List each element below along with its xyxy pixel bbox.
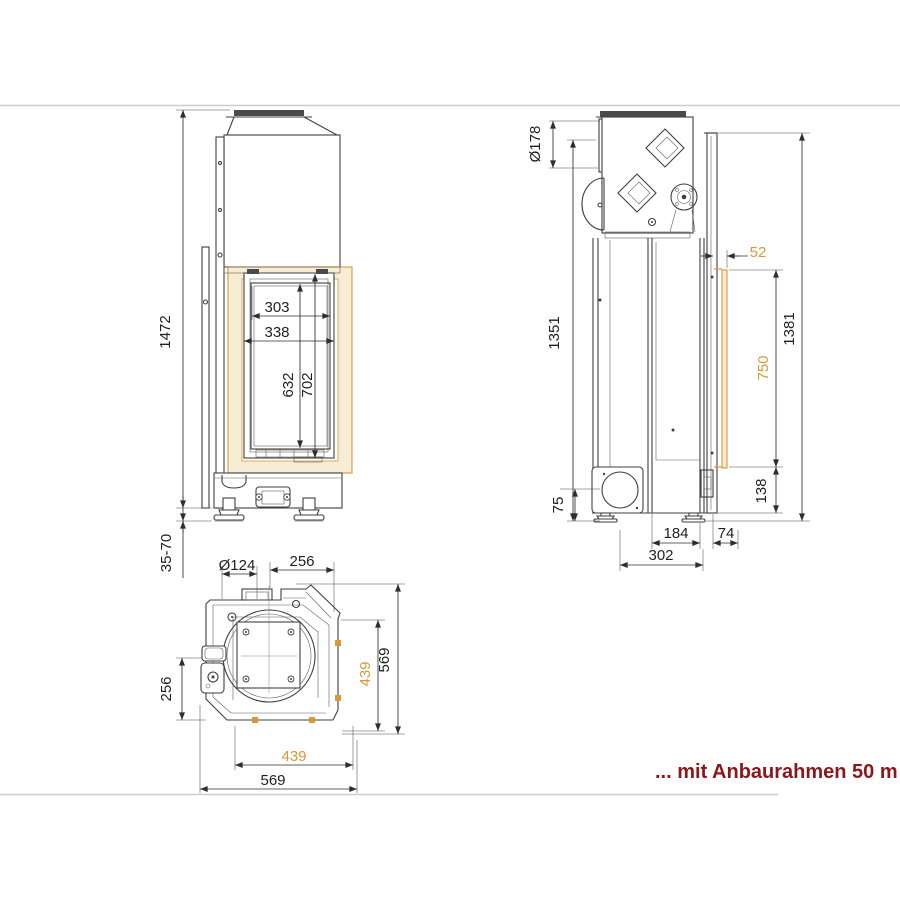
technical-drawing-page: 1472 35-70 303 338 632 702	[0, 0, 900, 900]
side-front-panel	[707, 133, 717, 513]
side-top-plate	[600, 111, 686, 117]
dim-side-flue-diameter: Ø178	[527, 126, 544, 163]
annotation-note: ... mit Anbaurahmen 50 m	[655, 761, 900, 789]
dim-front-door-width: 338	[264, 324, 289, 341]
dim-front-glass-width: 303	[264, 299, 289, 316]
dim-top-overall-depth: 569	[376, 647, 393, 672]
dim-side-base-depth: 302	[648, 547, 673, 564]
front-view: 1472 35-70 303 338 632 702	[157, 110, 352, 578]
dim-top-frame-width-front: 439	[281, 748, 306, 765]
side-feet	[594, 513, 705, 522]
side-upper-box	[602, 117, 693, 233]
dim-top-overall-width: 569	[260, 772, 285, 789]
dim-side-frame-bottom-offset: 138	[753, 478, 770, 503]
dim-front-total-height: 1472	[157, 315, 174, 348]
dim-side-front-clearance: 74	[718, 525, 735, 542]
dim-top-center-to-side: 256	[289, 553, 314, 570]
front-upper-box	[224, 135, 340, 267]
dim-side-base-height: 75	[550, 497, 567, 514]
front-top-plate	[234, 110, 304, 116]
dim-top-frame-width-right: 439	[357, 661, 374, 686]
dim-front-foot-adjust: 35-70	[158, 534, 175, 572]
dim-side-foot-spacing: 184	[663, 525, 688, 542]
bottom-fan-box	[592, 467, 643, 513]
dim-side-rear-height: 1351	[546, 316, 563, 349]
dim-side-front-height: 1381	[781, 312, 798, 345]
dim-top-side-offset: 256	[158, 676, 175, 701]
dim-top-inlet-diameter: Ø124	[219, 557, 256, 574]
dim-front-glass-height: 632	[280, 372, 297, 397]
dim-side-frame-height: 750	[755, 355, 772, 380]
side-view: Ø178 1351 75 52 750 138 1381 184 74	[527, 111, 810, 571]
top-view: Ø124 256 256 439 569 439 569	[158, 553, 405, 793]
dim-side-frame-offset: 52	[750, 244, 767, 261]
dim-front-door-height: 702	[299, 372, 316, 397]
